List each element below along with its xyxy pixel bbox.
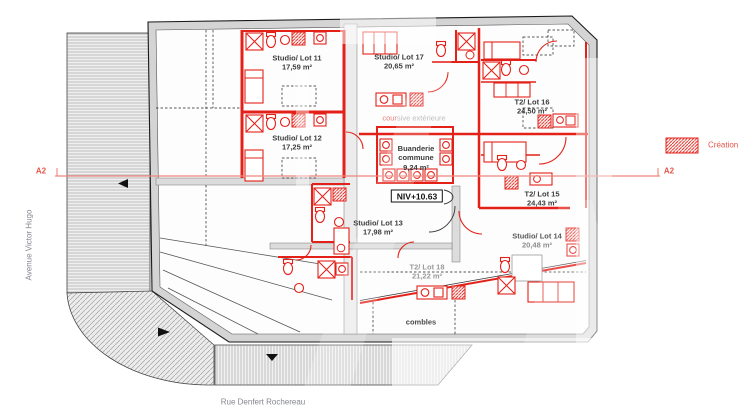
section-marker-a2-right: A2 bbox=[664, 167, 674, 176]
room-fixtures-lot18 bbox=[417, 286, 465, 299]
coursive-label: coursive extérieure bbox=[382, 114, 445, 123]
combles-label: combles bbox=[406, 317, 436, 326]
section-marker-a2-left: A2 bbox=[36, 167, 46, 176]
room-label-lot-11: Studio/ Lot 11 17,59 m² bbox=[272, 54, 321, 73]
room-label-lot-16: T2/ Lot 16 24,50 m² bbox=[514, 98, 549, 117]
room-label-lot-12: Studio/ Lot 12 17,25 m² bbox=[272, 134, 322, 153]
room-label-buanderie: Buanderie commune 9,24 m² bbox=[384, 144, 448, 172]
legend-creation-label: Création bbox=[708, 141, 738, 150]
room-label-lot-13: Studio/ Lot 13 17,98 m² bbox=[353, 219, 403, 238]
room-label-lot-14: Studio/ Lot 14 20,48 m² bbox=[512, 232, 562, 251]
street-label-avenue-victor-hugo: Avenue Victor Hugo bbox=[25, 210, 34, 281]
room-label-lot-15: T2/ Lot 15 24,43 m² bbox=[524, 190, 559, 209]
street-label-rue-denfert-rochereau: Rue Denfert Rochereau bbox=[221, 398, 306, 407]
room-label-lot-17: Studio/ Lot 17 20,65 m² bbox=[374, 53, 424, 72]
floorplan-screenshot: Studio/ Lot 11 17,59 m² Studio/ Lot 12 1… bbox=[0, 0, 750, 420]
street-avenue-victor-hugo-roadway bbox=[67, 33, 150, 293]
level-badge: NIV+10.63 bbox=[391, 190, 443, 203]
room-label-lot-18: T2/ Lot 18 21,22 m² bbox=[409, 263, 444, 282]
legend-creation-swatch bbox=[666, 138, 698, 153]
